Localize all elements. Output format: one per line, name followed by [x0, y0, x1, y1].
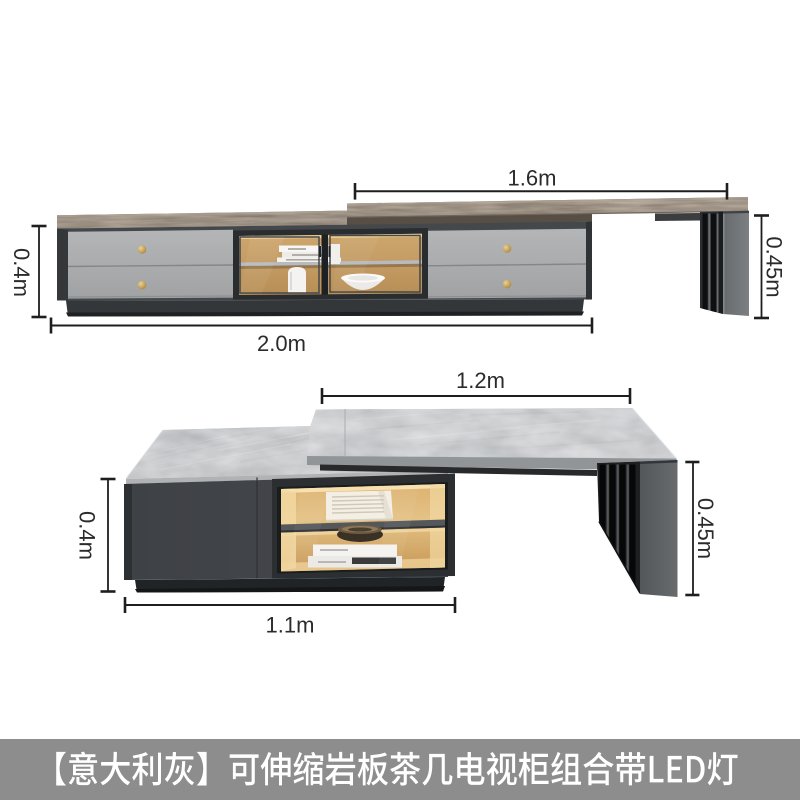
svg-text:0.4m: 0.4m: [75, 511, 100, 560]
svg-text:0.45m: 0.45m: [762, 236, 787, 297]
svg-text:0.45m: 0.45m: [693, 498, 718, 559]
svg-text:1.2m: 1.2m: [456, 368, 505, 393]
svg-text:1.1m: 1.1m: [266, 613, 315, 638]
svg-text:0.4m: 0.4m: [9, 248, 34, 297]
svg-text:1.6m: 1.6m: [508, 166, 557, 191]
svg-text:2.0m: 2.0m: [257, 331, 306, 356]
